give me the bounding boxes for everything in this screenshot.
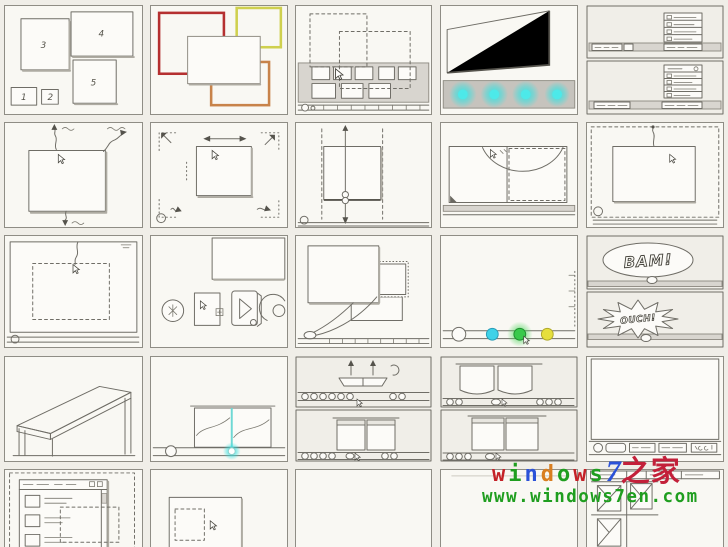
ouch-frame: OUCH! — [587, 292, 723, 347]
cyan-dot-icon — [486, 328, 498, 340]
watermark-char: 7 — [606, 455, 621, 488]
frame-top — [296, 357, 431, 407]
frame-bottom — [296, 410, 431, 461]
frame-top — [441, 357, 577, 407]
watermark-char: 之家 — [621, 454, 681, 488]
scrollbar-thumb — [102, 493, 107, 503]
explorer-window-sketch — [4, 469, 143, 547]
explorer-window — [19, 480, 108, 547]
snap-pane — [597, 519, 620, 546]
close-squiggle — [103, 127, 127, 151]
svg-text:4: 4 — [99, 29, 105, 39]
svg-text:1: 1 — [21, 93, 27, 103]
window — [212, 238, 285, 280]
comic-bam-ouch-sketch: BAM! OUCH! — [586, 235, 724, 348]
numbered-window-3: 3 — [21, 19, 70, 71]
glass-bench-sketch — [4, 356, 143, 462]
window-restore-sketch — [4, 235, 143, 348]
bam-frame: BAM! — [587, 236, 723, 289]
window — [196, 147, 252, 198]
jumplist-popup — [664, 13, 702, 42]
gear-orb-icon — [162, 300, 184, 322]
colored-frames-sketch — [150, 5, 288, 115]
desktop-taskbar-sketch — [586, 356, 724, 462]
thumbnail-left — [194, 408, 231, 447]
taskbar-thumbnails-sketch-a — [295, 356, 432, 462]
window — [29, 150, 107, 212]
numbered-window-4: 4 — [71, 12, 134, 57]
jumplist-sketches — [586, 5, 724, 115]
watermark-char: i — [508, 462, 524, 487]
watermark-line1: windows7之家 — [492, 448, 681, 490]
window-min-max-sketch — [4, 122, 143, 228]
rotate-arrow — [391, 365, 399, 375]
app-icons-sketch — [150, 235, 288, 348]
window — [169, 497, 242, 547]
watermark-line2: www.windows7en.com — [482, 487, 699, 507]
window — [449, 147, 567, 203]
empty-panel — [295, 469, 432, 547]
glass-taskbar-3d — [13, 386, 135, 456]
glow-taskbar — [443, 81, 575, 108]
bottom-taskbar-line — [7, 335, 139, 343]
jumplist-frame-a — [587, 6, 723, 58]
white-orb-icon — [166, 446, 177, 457]
watermark-char: d — [541, 462, 557, 487]
page-thumb — [498, 366, 532, 394]
bam-text: BAM! — [623, 250, 673, 271]
jumplist-popup — [664, 65, 702, 98]
maximize-squiggle — [51, 124, 74, 150]
window — [613, 147, 695, 203]
yellow-dot-icon — [541, 328, 553, 340]
bottom-taskbar-line — [593, 207, 717, 224]
glass-taskbar-glow-sketch — [440, 5, 578, 115]
aero-peek-thumbnails-sketch — [150, 356, 288, 462]
browser-swirl-icon — [259, 294, 284, 320]
svg-text:5: 5 — [91, 79, 97, 89]
white-window — [188, 36, 261, 84]
minimize-animation-sketch — [295, 235, 432, 348]
watermark-char: s — [590, 462, 606, 487]
horizontal-arrow — [203, 136, 246, 142]
taskbar-color-dots-sketch — [440, 235, 578, 348]
taskbar-thumbnails-sketch-b — [440, 356, 578, 462]
taskbar-hover-sketch — [295, 5, 432, 115]
window-front — [308, 246, 379, 304]
svg-text:3: 3 — [41, 41, 47, 51]
svg-text:2: 2 — [47, 93, 53, 103]
document-cursor-icon — [194, 293, 222, 325]
taskbar-orb — [157, 214, 166, 223]
glow-core — [228, 448, 235, 455]
drag-squiggle — [651, 125, 654, 146]
bottom-taskbar-line — [298, 216, 428, 226]
bottom-taskbar-line — [298, 104, 429, 111]
jumplist-frame-b — [587, 61, 723, 114]
numbered-window-1: 1 — [11, 87, 37, 105]
watermark-char: o — [557, 462, 573, 487]
taskbar-dots — [302, 393, 406, 400]
perspective-pane — [447, 11, 549, 73]
media-player-icon — [232, 291, 261, 326]
window — [324, 147, 382, 200]
window-selection-sketch — [150, 469, 288, 547]
white-orb-icon — [452, 327, 466, 341]
bottom-taskbar-line — [298, 339, 429, 344]
numbered-window-5: 5 — [73, 60, 117, 104]
desktop-window — [591, 359, 719, 439]
storyboard-canvas: 3 4 5 1 2 — [0, 0, 728, 547]
watermark-char: w — [492, 462, 508, 487]
ruler-ticks — [569, 275, 575, 306]
drag-to-top-sketch — [586, 122, 724, 228]
window-vertical-resize-sketch — [295, 122, 432, 228]
thumbnail-right — [232, 408, 271, 447]
window-move-sketch — [150, 122, 288, 228]
taskbar-band — [443, 205, 574, 211]
page-thumb — [460, 366, 494, 394]
window-zorder-sketch: 3 4 5 1 2 — [4, 5, 143, 115]
watermark-char: n — [525, 462, 541, 487]
maximized-window — [10, 242, 137, 332]
numbered-window-2: 2 — [42, 89, 59, 104]
watermark-char: w — [573, 462, 589, 487]
aero-snap-arc-sketch — [440, 122, 578, 228]
